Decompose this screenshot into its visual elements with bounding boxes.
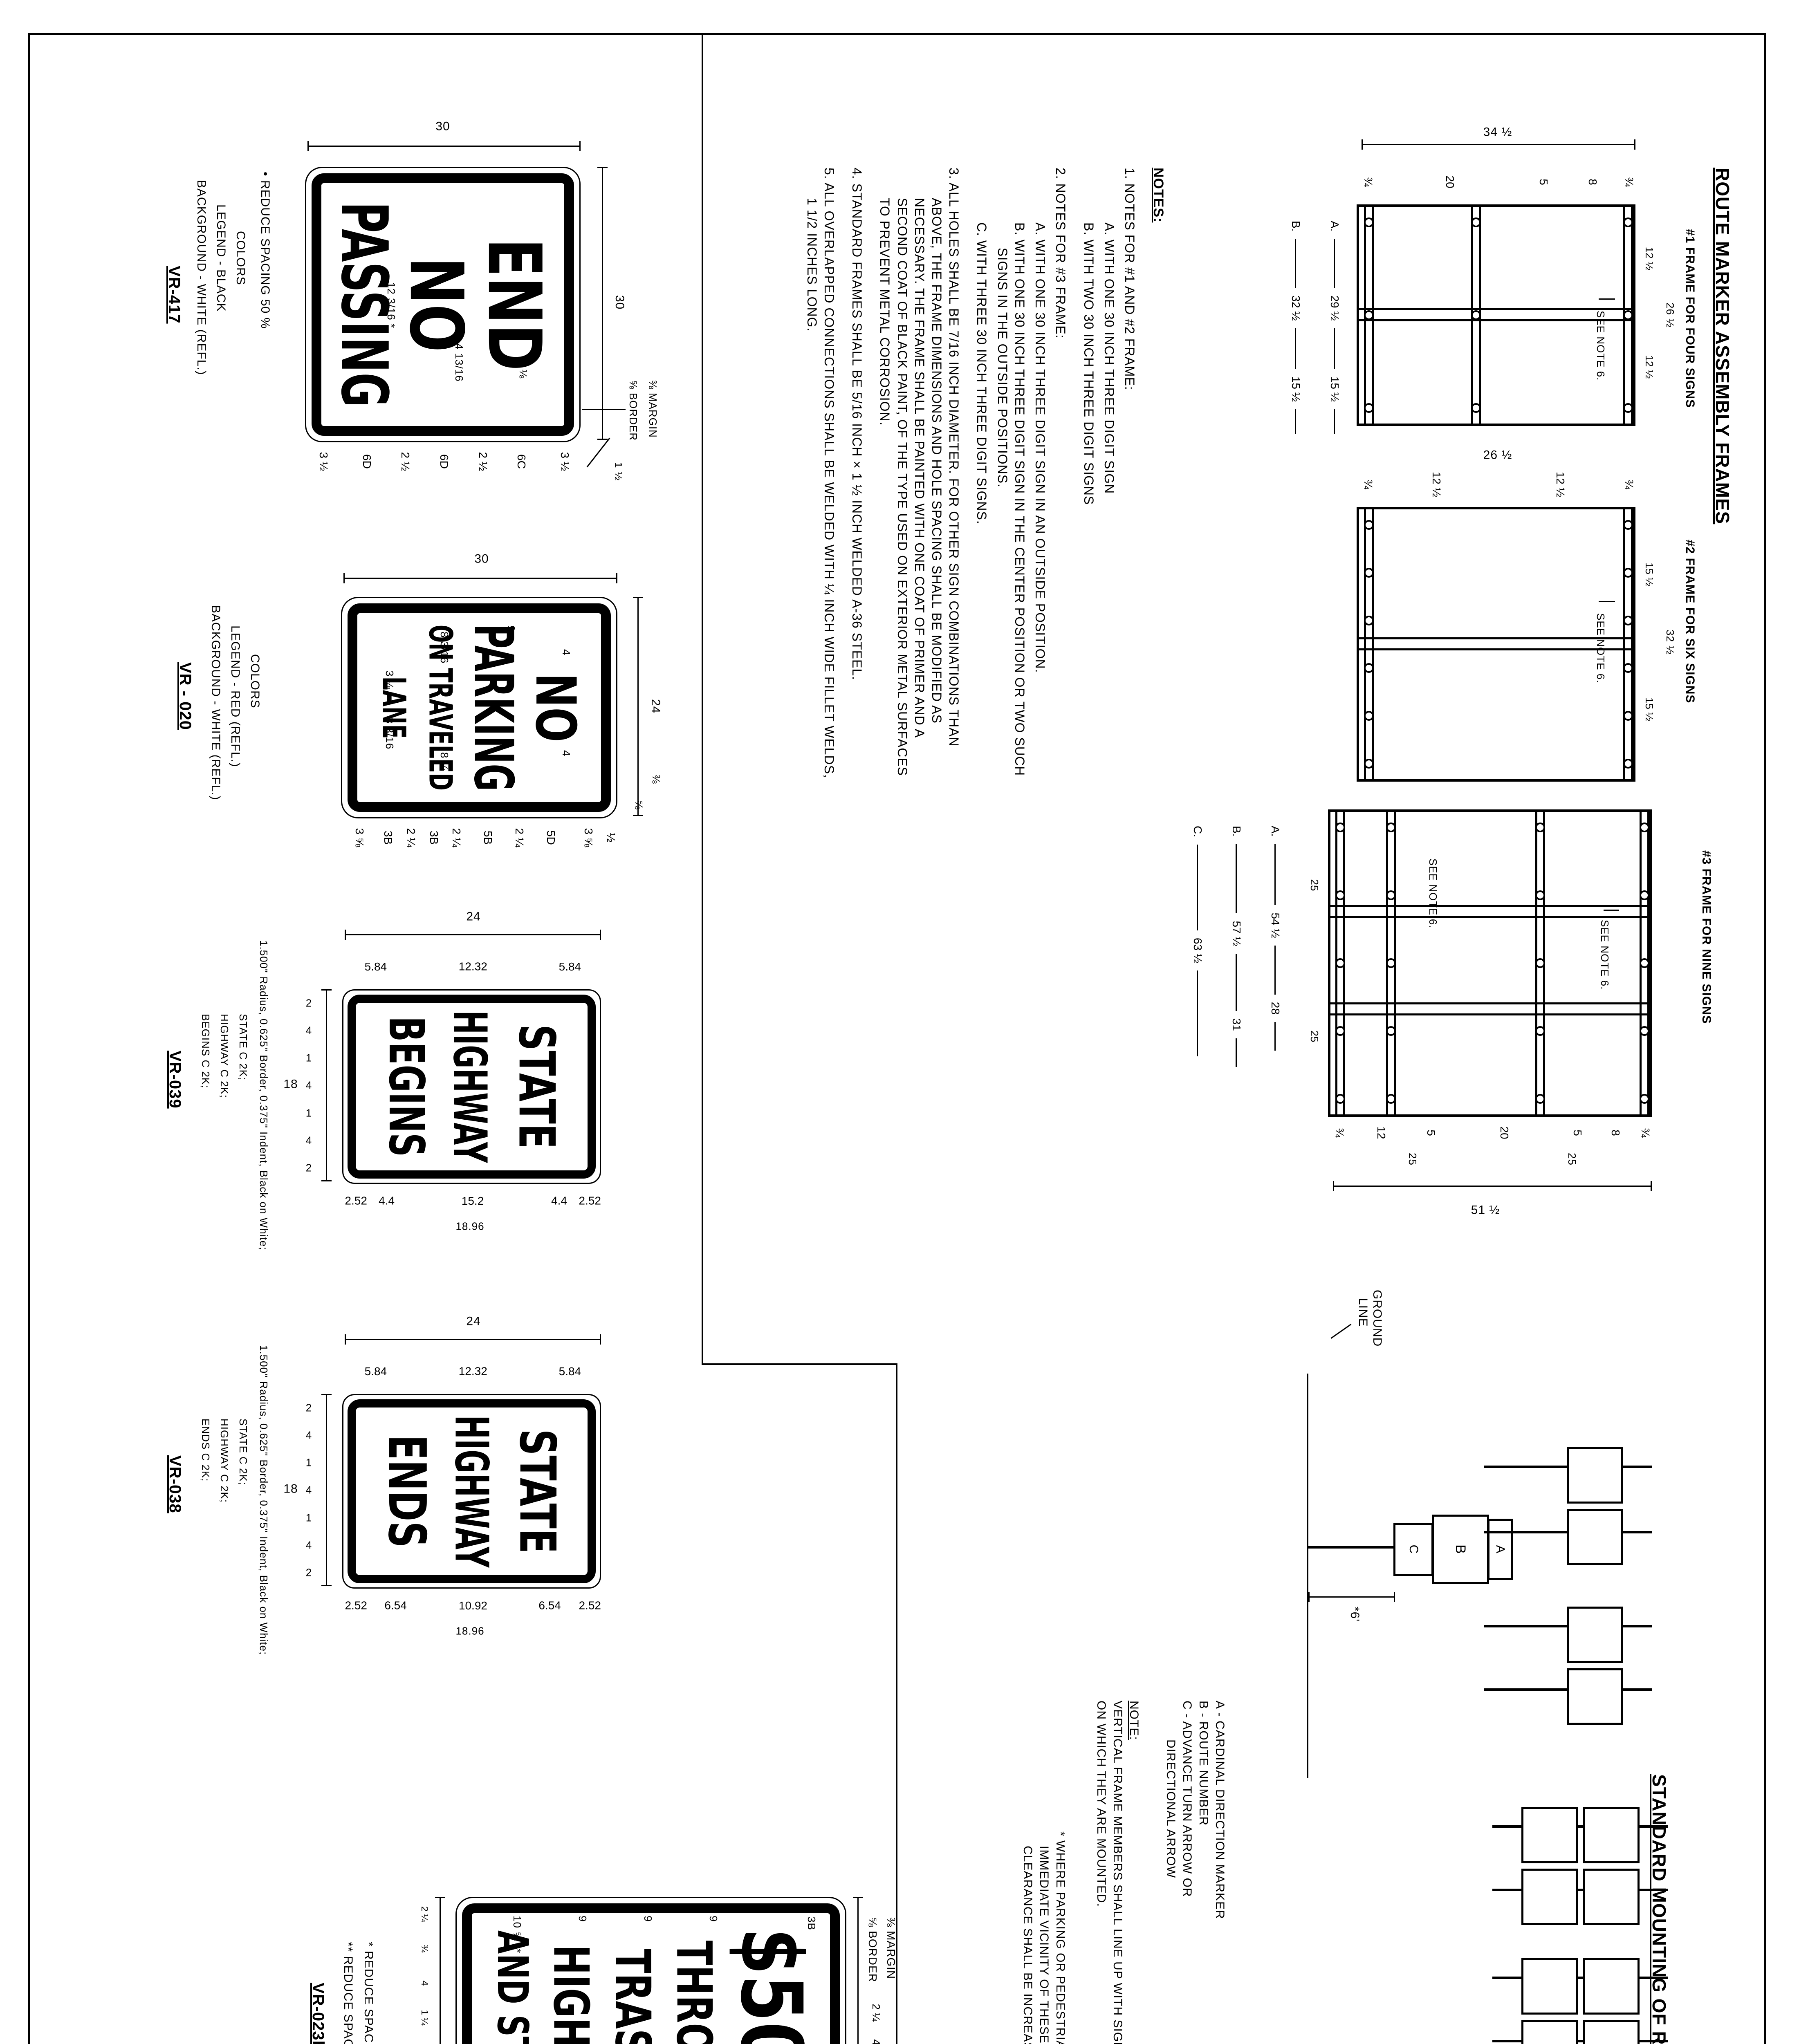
vr039-spec-1: STATE C 2K;	[237, 1014, 249, 1080]
bolt-hole	[1335, 1094, 1345, 1104]
dim-label: B.	[1289, 221, 1302, 231]
vr023b-border-note: ⅝ BORDER	[866, 1917, 879, 1982]
frame1-left-total: 34 ½	[1483, 125, 1512, 139]
frame3-caption: #3 FRAME FOR NINE SIGNS	[1699, 850, 1713, 1024]
frame1-alt-b: B. 32 ½ 15 ½	[1289, 221, 1302, 434]
mounting-note-body-2: ON WHICH THEY ARE MOUNTED.	[1094, 1701, 1108, 1907]
dim-label: 5.84	[358, 1340, 393, 1403]
note-3: 3. ALL HOLES SHALL BE 7/16 INCH DIAMETER…	[876, 168, 962, 781]
vr417-colors-head: COLORS	[233, 231, 247, 285]
bolt-hole	[1335, 890, 1345, 900]
dim-label: 5B	[466, 820, 510, 855]
dim-label: 15 ½	[1328, 377, 1341, 402]
bolt-hole	[1640, 890, 1649, 900]
sign-line: NO	[528, 673, 583, 742]
vr417-dim-3: 12 3/16 *	[385, 282, 397, 328]
leader	[582, 409, 626, 410]
route-marker	[1521, 1958, 1578, 2015]
sign-line: HIGHWAY	[449, 1415, 495, 1568]
vr038-spec-2: HIGHWAY C 2K;	[218, 1419, 231, 1503]
bolt-hole	[1364, 759, 1374, 769]
vr020-dim-1: 4	[560, 649, 572, 655]
frame3-right-chain: ¾ 8 5 20 5 12 ¾	[1333, 1115, 1652, 1150]
vr020-dim-8: 8 ¼	[438, 752, 451, 771]
dim-label: 2 ¼	[447, 820, 466, 855]
vr023b-top-chain: 2 ¼ 4 ¾ 11 ½ * 1 ¼ 6 ½ ½	[866, 1995, 886, 2044]
dim-label: C.	[1191, 826, 1204, 837]
bolt-hole	[1386, 958, 1396, 968]
bolt-hole	[1640, 1094, 1649, 1104]
dim-label: 4	[295, 1073, 322, 1098]
dim-label: 15 ½	[1637, 642, 1662, 777]
dim-label: 1	[295, 1450, 322, 1475]
page: { "sheet": { "frames_title": "ROUTE MARK…	[0, 0, 1799, 2044]
dim-label: 5.84	[552, 1340, 588, 1403]
dim-label: 5	[1563, 1115, 1592, 1150]
dim-label: A.	[1269, 826, 1282, 836]
vr417-dim-1: 7 ⅛	[517, 360, 529, 379]
marker-a-box: A	[1487, 1519, 1513, 1580]
bolt-hole	[1623, 520, 1633, 530]
frame2-center-member	[1359, 637, 1633, 650]
dim-label: 6D	[339, 444, 394, 479]
dim-label: ¾	[1622, 467, 1635, 502]
dim-label: 2 ½	[394, 444, 417, 479]
frame2-caption: #2 FRAME FOR SIX SIGNS	[1683, 540, 1697, 703]
bolt-hole	[1364, 403, 1374, 413]
dim-label: ¾	[1362, 467, 1375, 502]
vr023b-dim-9b: 9	[642, 1916, 654, 1922]
vr039-left-chain: 5.84 12.32 5.84	[345, 949, 601, 984]
vr020-dim-2: 4	[560, 750, 572, 756]
dim-label: 12 ½	[1498, 467, 1622, 502]
dim-label: 1	[295, 1046, 322, 1070]
dim-label: 31	[1230, 1018, 1243, 1031]
dim-label: 2 ¼	[401, 820, 420, 855]
vr039-spec-3: BEGINS C 2K;	[199, 1014, 212, 1089]
vr039-height-dimline	[345, 934, 601, 935]
vr020-border-note: ⅝	[633, 800, 645, 810]
bolt-hole	[1535, 823, 1545, 832]
dim-label: 4	[295, 1018, 322, 1043]
dim-label: 29 ½	[1328, 295, 1341, 320]
marker-legend-4: DIRECTIONAL ARROW	[1164, 1739, 1178, 1878]
note-2a: A. WITH ONE 30 INCH THREE DIGIT SIGN IN …	[1032, 168, 1049, 781]
sign-line: NO	[399, 257, 472, 352]
vr039-right-chain: 2.52 4.4 15.2 4.4 2.52	[345, 1183, 601, 1219]
dim-label: 5.84	[358, 936, 393, 998]
vr038-spec: 1.500" Radius, 0.625" Border, 0.375" Ind…	[257, 1345, 270, 1655]
vr023b-bottom-chain: 2 ¼ ¾ 4 1 ¼ 4 1 ¼ 4 ¾ 2 ¼	[415, 1897, 434, 2044]
bolt-hole	[1640, 823, 1649, 832]
frame1-center-member	[1359, 308, 1633, 321]
mounting-note-head: NOTE:	[1127, 1701, 1141, 1740]
vr417-reduce-note: • REDUCE SPACING 50 %	[258, 172, 272, 329]
note-2c: C. WITH THREE 30 INCH THREE DIGIT SIGNS.	[973, 168, 990, 781]
dim-label: 2	[295, 991, 322, 1015]
dim-label: 32 ½	[1289, 295, 1302, 320]
frames-section-title: ROUTE MARKER ASSEMBLY FRAMES	[1712, 168, 1734, 524]
vr023b-bottom-dimline	[440, 1897, 441, 2044]
bolt-hole	[1640, 1026, 1649, 1036]
dim-label: 4	[415, 2035, 434, 2044]
dim-label: 2	[295, 1155, 322, 1180]
dim-label: 2.52	[338, 1190, 373, 1213]
bolt-hole	[1471, 217, 1481, 227]
dim-label: 1	[295, 1505, 322, 1530]
bolt-hole	[1623, 616, 1633, 625]
dim-label: 4 ¾	[866, 2031, 886, 2044]
vr023b-dim-9a: 9	[707, 1916, 720, 1922]
dim-label: 12 ½	[1637, 204, 1662, 313]
note-1b: B. WITH TWO 30 INCH THREE DIGIT SIGNS	[1080, 168, 1097, 781]
bolt-hole	[1364, 217, 1374, 227]
route-marker	[1521, 2020, 1578, 2044]
vr039-bottom-chain: 2 4 1 4 1 4 2	[296, 989, 321, 1181]
vr020-margin-note: ⅜	[650, 775, 662, 784]
frame1	[1357, 204, 1635, 426]
dim-label: 6C	[494, 444, 549, 479]
dim-label: ¾	[1333, 1115, 1346, 1150]
bolt-hole	[1364, 568, 1374, 578]
dim-label: A.	[1328, 221, 1341, 231]
route-marker	[1567, 1607, 1623, 1663]
dim-label: 6D	[417, 444, 471, 479]
frame1-caption: #1 FRAME FOR FOUR SIGNS	[1683, 229, 1697, 408]
dim-label: 25	[1302, 961, 1327, 1112]
vr020-label: VR - 020	[176, 662, 194, 730]
dim-label: 20	[1446, 1115, 1563, 1150]
frame3-right-mid-1: 25	[1566, 1153, 1578, 1165]
ground-line	[1307, 1374, 1308, 1778]
dim-label: 57 ½	[1230, 921, 1243, 946]
bolt-hole	[1535, 958, 1545, 968]
vr038-spec-1: STATE C 2K;	[237, 1419, 249, 1485]
dim-label: 63 ½	[1191, 938, 1204, 963]
frame2-left-total: 26 ½	[1483, 448, 1512, 462]
vr023b-label: VR-023b	[309, 1983, 327, 2044]
dim-label: 54 ½	[1269, 912, 1282, 938]
dim-label: 15 ½	[1637, 507, 1662, 642]
dim-label: 6.54	[532, 1577, 568, 1635]
dim-label: 25	[1302, 809, 1327, 961]
frame3-rail-mid1	[1535, 812, 1545, 1114]
dim-label: 2	[295, 1396, 322, 1420]
clearance-label: *6'	[1348, 1607, 1362, 1622]
dim-label: 5D	[529, 820, 573, 855]
ground-line-label-2: LINE	[1356, 1298, 1370, 1327]
vr417-height-chain: 3 ½ 6C 2 ½ 6D 2 ½ 6D 3 ½	[307, 444, 581, 479]
assembly-cluster	[1521, 1807, 1640, 1925]
vr020-dim-3: 9	[505, 625, 517, 632]
dim-label: 3 ½	[549, 444, 581, 479]
bolt-hole	[1535, 1026, 1545, 1036]
notes-heading: NOTES:	[1149, 168, 1167, 781]
vr417-border-note: ⅝ BORDER	[627, 380, 639, 441]
bolt-hole	[1640, 958, 1649, 968]
route-marker	[1521, 1807, 1578, 1863]
bolt-hole	[1335, 1026, 1345, 1036]
vr039-spec-2: HIGHWAY C 2K;	[218, 1014, 231, 1098]
vr417-label: VR-417	[165, 266, 183, 324]
frame3-rail-bottom	[1335, 812, 1345, 1114]
leader	[1599, 298, 1615, 300]
vr020-width-dimline	[637, 597, 639, 816]
dim-label: ¾	[1622, 164, 1635, 199]
divider-c	[702, 1363, 897, 1365]
frame3-rail-top	[1640, 812, 1649, 1114]
leader	[1604, 910, 1619, 911]
dim-label: 3B	[420, 820, 446, 855]
note-1a: A. WITH ONE 30 INCH THREE DIGIT SIGN	[1101, 168, 1118, 781]
note-2: 2. NOTES FOR #3 FRAME:	[1052, 168, 1069, 781]
sign-line: TRASH ON	[608, 1949, 657, 2044]
dim-label: 12 ½	[1375, 467, 1498, 502]
bolt-hole	[1471, 403, 1481, 413]
vr417-width-dim: 30	[612, 295, 626, 309]
vr038-height-dimline	[345, 1339, 601, 1340]
frame3-member-2	[1330, 1002, 1649, 1015]
frame3-alt-a: A. 54 ½ 28	[1269, 826, 1282, 1051]
clearance-dimline	[1308, 1596, 1395, 1598]
route-marker	[1583, 1807, 1640, 1863]
vr038-bottom-chain: 2 4 1 4 1 4 2	[296, 1394, 321, 1586]
frame1-top-total: 26 ½	[1664, 303, 1676, 328]
frame1-alt-a: A. 29 ½ 15 ½	[1328, 221, 1341, 434]
dim-label: 5.84	[552, 936, 588, 998]
dim-label: 4.4	[369, 1182, 404, 1221]
vr023b-dim-3b: 3B	[805, 1916, 818, 1930]
bolt-hole	[1623, 759, 1633, 769]
note-4: 4. STANDARD FRAMES SHALL BE 5/16 INCH × …	[848, 168, 866, 781]
dim-label: 4	[295, 1128, 322, 1152]
dim-label: 2.52	[338, 1595, 373, 1617]
frame3-see-note-1: SEE NOTE 6.	[1598, 920, 1611, 990]
vr039-spec: 1.500" Radius, 0.625" Border, 0.375" Ind…	[257, 940, 270, 1250]
marker-c-box: C	[1393, 1523, 1433, 1576]
frame2-left-chain: ¾ 12 ½ 12 ½ ¾	[1362, 467, 1635, 502]
dim-label: 2 ¼	[415, 1897, 434, 1931]
dim-label: 15.2	[455, 1134, 491, 1268]
marker-a-label: A	[1493, 1545, 1507, 1553]
marker-legend-3: C - ADVANCE TURN ARROW OR	[1180, 1701, 1194, 1897]
mounting-section-title: STANDARD MOUNTING OF ROUTE MARKER ASSEMB…	[1648, 1774, 1670, 2044]
sign-line: STATE	[511, 1024, 561, 1149]
bolt-hole	[1623, 403, 1633, 413]
frame3-alt-b: B. 57 ½ 31	[1230, 826, 1243, 1067]
note-5: 5. ALL OVERLAPPED CONNECTIONS SHALL BE W…	[803, 168, 837, 781]
leader	[1599, 601, 1615, 602]
dim-label: 3B	[375, 820, 401, 855]
route-marker	[1583, 1958, 1640, 2015]
dim-label: 2	[295, 1560, 322, 1585]
vr038-width-dim: 18	[283, 1482, 298, 1496]
vr020-height-dim: 30	[474, 552, 489, 566]
sign-post	[1308, 1546, 1395, 1549]
marker-b-label: B	[1453, 1544, 1469, 1554]
frame3-bottom-chain: 25 25	[1302, 809, 1327, 1112]
frame3-right-total: 51 ½	[1471, 1203, 1500, 1217]
bolt-hole	[1623, 663, 1633, 673]
dim-label: 28	[1269, 1002, 1282, 1015]
dim-label: 12 ½	[1637, 313, 1662, 421]
vr023b-reduce-60: ** REDUCE SPACING 60%	[341, 1942, 355, 2044]
dim-label: 3 ⅝	[343, 820, 375, 855]
vr023b-margin-note: ⅜ MARGIN	[884, 1917, 897, 1979]
dim-label: 4	[295, 1478, 322, 1502]
dim-label: 2.52	[572, 1595, 608, 1617]
vr020-colors-head: COLORS	[248, 654, 262, 708]
sign-vr417-face: END NO PASSING	[312, 173, 574, 436]
vr039-label: VR-039	[166, 1051, 184, 1109]
divider-a	[702, 35, 703, 1363]
notes-block: NOTES: 1. NOTES FOR #1 AND #2 FRAME: A. …	[803, 168, 1167, 781]
sign-line: HIGHWAYS	[547, 1945, 595, 2044]
vr020-colors-background: BACKGROUND - WHITE (REFL.)	[209, 605, 222, 800]
vr038-label: VR-038	[166, 1455, 184, 1513]
dim-label: 3 ½	[307, 444, 339, 479]
vr417-colors-legend: LEGEND - BLACK	[214, 204, 228, 312]
vr039-width-dimline	[326, 989, 327, 1181]
frame3-member-1	[1330, 905, 1649, 918]
dim-label: ¾	[1639, 1115, 1652, 1150]
sign-line: THROWING	[669, 1941, 718, 2044]
vr023b-dim-10: 10 ⅝ **	[511, 1916, 523, 1953]
dim-label: 8	[1592, 1115, 1639, 1150]
route-marker	[1567, 1509, 1623, 1565]
sign-vr020-face: NO PARKING ON TRAVELED LANE	[348, 603, 611, 812]
bolt-hole	[1364, 711, 1374, 721]
sign-vr417: END NO PASSING	[305, 167, 581, 442]
vr038-width-dimline	[326, 1394, 327, 1586]
note-2b: B. WITH ONE 30 INCH THREE DIGIT SIGN IN …	[994, 168, 1028, 781]
dim-label: 8	[1562, 164, 1622, 199]
dim-label: 1 ¼	[415, 2000, 434, 2035]
dim-label: 5	[1416, 1115, 1446, 1150]
dim-label: 5	[1525, 164, 1562, 199]
vr020-width-dim: 24	[648, 699, 662, 713]
dim-label: 4.4	[542, 1182, 577, 1221]
dim-label: 6.54	[378, 1577, 413, 1635]
dim-label: B.	[1230, 826, 1243, 836]
vr020-dim-4: 9	[505, 779, 517, 785]
frame2-top-chain: 15 ½ 15 ½	[1637, 507, 1662, 777]
vr020-dim-6: 3 ⅛	[383, 670, 396, 689]
vr020-dim-5: 8 3/16	[438, 632, 451, 663]
bolt-hole	[1364, 520, 1374, 530]
bolt-hole	[1535, 1094, 1545, 1104]
vr038-height-dim: 24	[466, 1315, 480, 1329]
bolt-hole	[1386, 890, 1396, 900]
vr417-dim-2: 4 13/16	[453, 343, 465, 382]
dim-label: ½	[604, 820, 617, 855]
bolt-hole	[1364, 663, 1374, 673]
dim-label: 4	[295, 1423, 322, 1448]
note-1: 1. NOTES FOR #1 AND #2 FRAME:	[1121, 168, 1138, 781]
dim-label: 12	[1346, 1115, 1416, 1150]
frame3-right-mid-2: 25	[1406, 1153, 1419, 1165]
dim-label: 3 ⅝	[573, 820, 604, 855]
frame1-see-note: SEE NOTE 6.	[1594, 311, 1607, 381]
dim-label: 1	[295, 1100, 322, 1125]
assembly-cluster	[1521, 1958, 1640, 2044]
sign-500: $500	[729, 1928, 813, 2044]
bolt-hole	[1386, 1026, 1396, 1036]
vr020-colors-legend: LEGEND - RED (REFL.)	[228, 625, 242, 767]
bolt-hole	[1335, 958, 1345, 968]
frame3-rail-mid2	[1386, 812, 1396, 1114]
bolt-hole	[1623, 711, 1633, 721]
sign-line: BEGINS	[381, 1016, 430, 1157]
vr038-left-chain: 5.84 12.32 5.84	[345, 1354, 601, 1389]
ground-line-label: GROUND	[1370, 1290, 1384, 1347]
vr023b-dim-9c: 9	[576, 1916, 589, 1922]
vr023b-reduce-40: * REDUCE SPACING 40%	[361, 1942, 375, 2044]
marker-legend-2: B - ROUTE NUMBER	[1196, 1701, 1210, 1826]
dim-label: 4	[295, 1533, 322, 1557]
marker-legend-1: A - CARDINAL DIRECTION MARKER	[1213, 1701, 1227, 1919]
vr038-right-total: 18.96	[455, 1625, 484, 1638]
vr039-width-dim: 18	[283, 1078, 298, 1091]
sign-line-500: $500 FINE FOR	[737, 1928, 805, 2044]
vr038-spec-3: ENDS C 2K;	[199, 1419, 212, 1482]
assembly-cluster	[1567, 1607, 1623, 1725]
route-marker	[1583, 2020, 1640, 2044]
vr417-width-dimline	[602, 167, 603, 440]
dim-label: 15 ½	[1289, 377, 1302, 402]
frame3-height-dimline	[1333, 1186, 1652, 1187]
vr417-margin-note: ⅜ MARGIN	[646, 380, 659, 438]
frame2-see-note: SEE NOTE 6.	[1594, 613, 1607, 683]
bolt-hole	[1386, 1094, 1396, 1104]
bolt-hole	[1623, 217, 1633, 227]
vr417-radius-dim: 1 ½	[612, 462, 625, 481]
route-marker	[1521, 1869, 1578, 1925]
mounting-note-body-1: VERTICAL FRAME MEMBERS SHALL LINE UP WIT…	[1110, 1701, 1124, 2044]
marker-c-label: C	[1406, 1545, 1420, 1554]
vr020-height-dimline	[343, 578, 617, 579]
assembly-cluster	[1567, 1447, 1623, 1565]
route-marker	[1583, 1869, 1640, 1925]
vr023b-top-dimline	[857, 1897, 859, 2044]
route-marker	[1567, 1668, 1623, 1725]
vr020-dim-7: 3 3/16	[383, 717, 396, 749]
vr417-height-dimline	[307, 146, 581, 147]
sign-line: STATE	[512, 1429, 562, 1554]
frame1-left-chain: ¾ 8 5 20 ¾	[1362, 164, 1635, 199]
marker-b-box: B	[1432, 1515, 1489, 1584]
frame1-top-chain: 12 ½ 12 ½	[1637, 204, 1662, 421]
where-note-2: IMMEDIATE VICINITY OF THESE SIGNS MINIMU…	[1037, 1846, 1051, 2044]
dim-label: 2 ¼	[510, 820, 529, 855]
bolt-hole	[1535, 890, 1545, 900]
where-note-1: * WHERE PARKING OR PEDESTRIAN TRAFFIC WI…	[1053, 1831, 1067, 2044]
bolt-hole	[1335, 823, 1345, 832]
vr417-colors-background: BACKGROUND - WHITE (REFL.)	[194, 180, 208, 375]
frame2-top-total: 32 ½	[1664, 630, 1676, 655]
bolt-hole	[1364, 616, 1374, 625]
dim-label: 20	[1375, 164, 1525, 199]
dim-label: 10.92	[455, 1558, 491, 1654]
sign-line: ENDS	[381, 1435, 432, 1548]
sign-vr020: NO PARKING ON TRAVELED LANE	[341, 597, 617, 818]
sign-line: PARKING	[466, 624, 519, 791]
vr038-right-chain: 2.52 6.54 10.92 6.54 2.52	[345, 1588, 601, 1623]
bolt-hole	[1623, 568, 1633, 578]
dim-label: 2 ¼	[866, 1995, 886, 2031]
dim-label: 4	[415, 1966, 434, 2000]
frame3-alt-c: C. 63 ½	[1191, 826, 1204, 1056]
